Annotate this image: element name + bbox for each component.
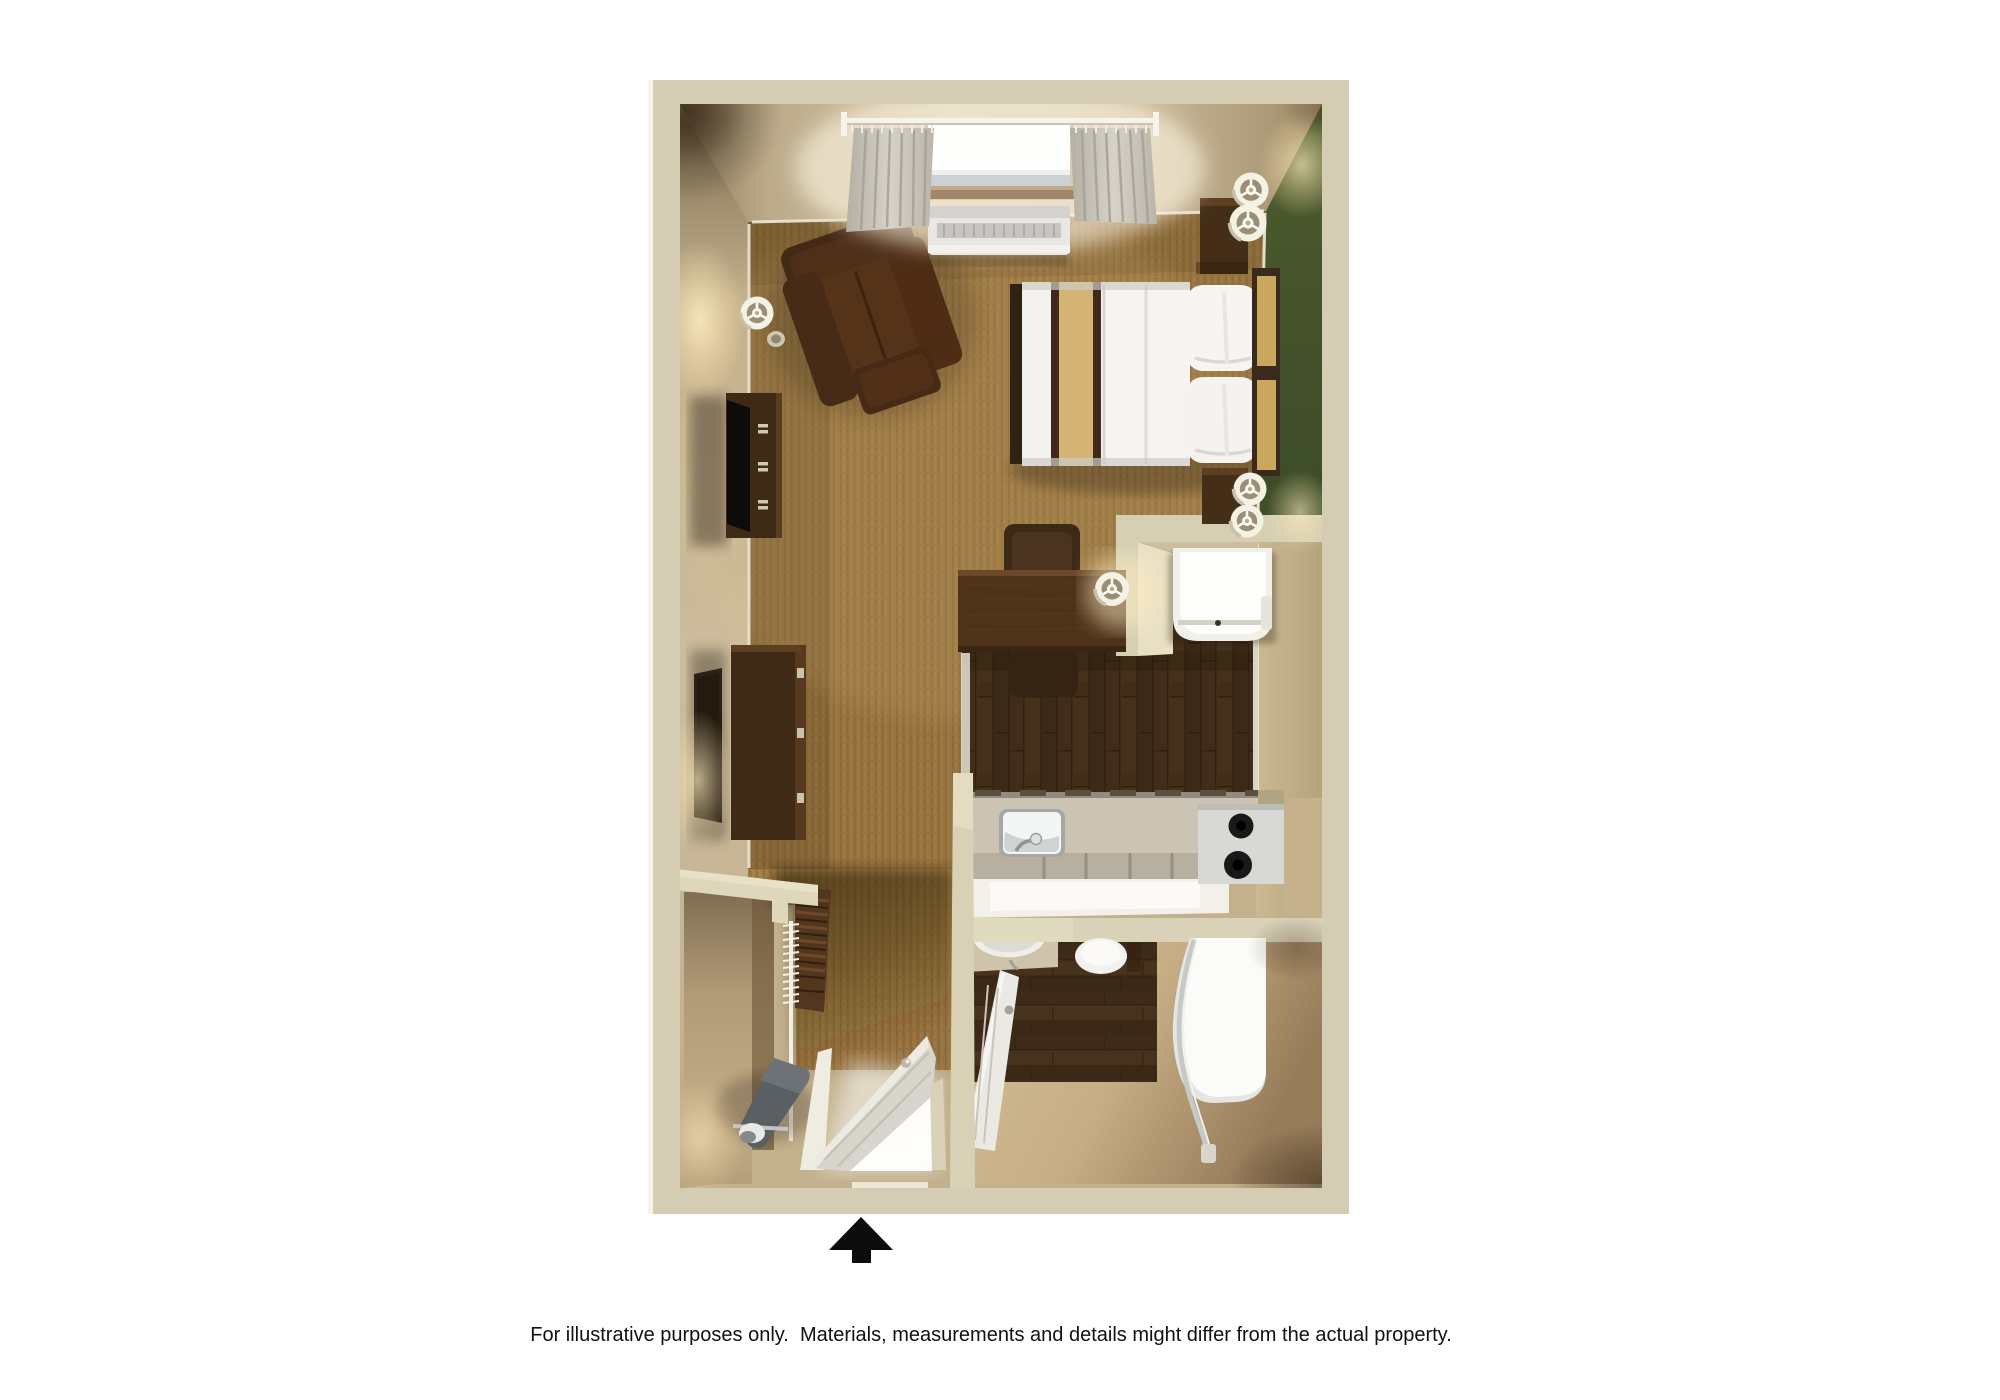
svg-text:For illustrative purposes only: For illustrative purposes only. Material… — [530, 1324, 1452, 1346]
